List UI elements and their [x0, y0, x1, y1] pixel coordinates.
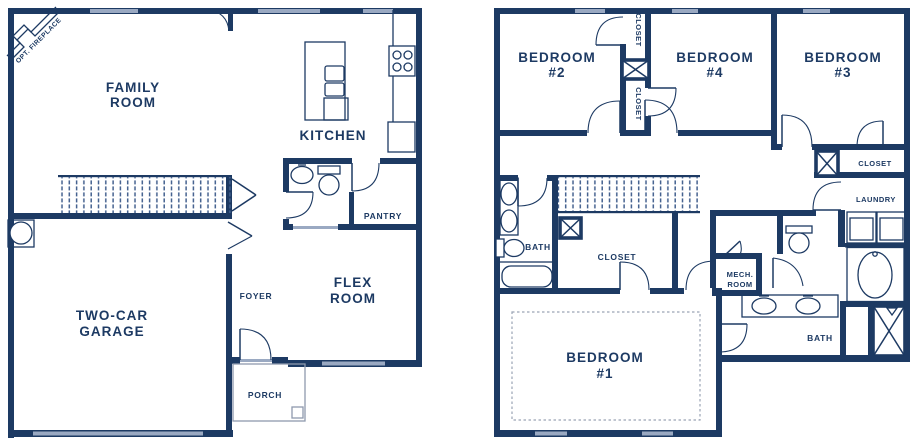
- room-label-kitchen: KITCHEN: [300, 128, 367, 143]
- exterior-walls-first-floor: [8, 8, 422, 438]
- room-label-bath: BATH: [807, 333, 833, 343]
- sink: [501, 210, 517, 232]
- toilet: [786, 226, 812, 253]
- door-laundry: [813, 182, 841, 210]
- floor-plan-canvas: OPT. FIREPLACE FAMILY ROOM KITCHEN PANTR…: [0, 0, 911, 444]
- room-label-bedroom-1: #1: [596, 366, 613, 381]
- door-front-entry: [240, 329, 271, 360]
- room-label-flex-room: ROOM: [330, 291, 376, 306]
- window: [363, 9, 393, 13]
- window: [535, 432, 567, 436]
- window: [258, 9, 320, 13]
- door-bedroom-3: [782, 115, 812, 147]
- room-label-mech-room: MECH.: [727, 270, 754, 279]
- window: [672, 9, 698, 13]
- window: [575, 9, 605, 13]
- window: [90, 9, 138, 13]
- room-label-mech-room: ROOM: [727, 280, 752, 289]
- door-closet-bedroom2: [596, 17, 623, 45]
- room-label-bedroom-3: #3: [834, 65, 851, 80]
- shower: [874, 307, 904, 355]
- door-closet-bedroom3: [857, 121, 883, 147]
- door-water-closet: [773, 258, 803, 288]
- door-garage-entry: [228, 222, 252, 249]
- room-label-garage: TWO-CAR: [76, 308, 148, 323]
- garden-tub: [847, 248, 904, 302]
- island-sink: [325, 83, 344, 96]
- room-label-bedroom-1: BEDROOM: [566, 350, 644, 365]
- kitchen-counter: [388, 10, 415, 152]
- room-label-foyer: FOYER: [240, 291, 273, 301]
- chase-xbox: [560, 218, 581, 238]
- sink: [291, 165, 313, 184]
- room-label-family-room: FAMILY: [106, 80, 160, 95]
- refrigerator: [388, 122, 415, 152]
- door-owner-closet: [620, 262, 649, 290]
- room-label-bedroom-4: #4: [706, 65, 723, 80]
- porch-column: [292, 407, 303, 418]
- room-label-bedroom-3: BEDROOM: [804, 50, 882, 65]
- staircase: [58, 177, 232, 213]
- island-sink: [325, 66, 344, 81]
- garage-door: [33, 432, 203, 436]
- washer: [847, 212, 876, 243]
- fireplace: [7, 7, 60, 60]
- door-hall-bath: [518, 178, 547, 206]
- toilet: [496, 239, 524, 257]
- room-label-laundry: LAUNDRY: [856, 195, 896, 204]
- sink: [796, 298, 820, 314]
- window: [322, 362, 385, 366]
- room-label-closet: CLOSET: [634, 87, 643, 120]
- hall-bath-fixtures: [496, 178, 557, 291]
- dryer: [877, 212, 906, 243]
- second-floor-plan: BEDROOM #2 BEDROOM #4 BEDROOM #3 CLOSET …: [494, 8, 910, 437]
- stove: [389, 46, 415, 76]
- doors-first-floor: [208, 10, 379, 360]
- room-label-family-room: ROOM: [110, 95, 156, 110]
- door-powder-room: [286, 192, 313, 218]
- floor-plan-drawing: OPT. FIREPLACE FAMILY ROOM KITCHEN PANTR…: [0, 0, 911, 444]
- room-label-porch: PORCH: [248, 390, 282, 400]
- room-label-garage: GARAGE: [79, 324, 144, 339]
- window: [803, 9, 830, 13]
- window: [642, 432, 673, 436]
- chase-xbox: [816, 151, 838, 176]
- room-label-flex-room: FLEX: [334, 275, 373, 290]
- powder-room-fixtures: [291, 165, 340, 195]
- door-owner-bath: [719, 324, 747, 352]
- chase-xbox: [622, 60, 649, 79]
- laundry-appliances: [847, 212, 906, 243]
- sink: [501, 183, 517, 205]
- bathtub: [497, 262, 557, 291]
- door-bedroom-2: [588, 101, 620, 133]
- room-label-bath: BATH: [525, 242, 551, 252]
- room-label-pantry: PANTRY: [364, 211, 402, 221]
- door-stair-closet: [232, 179, 256, 211]
- room-label-closet: CLOSET: [634, 13, 643, 46]
- toilet: [318, 166, 340, 195]
- room-label-bedroom-2: #2: [548, 65, 565, 80]
- sink: [752, 298, 776, 314]
- room-label-closet: CLOSET: [598, 252, 637, 262]
- kitchen-island: [305, 42, 348, 120]
- first-floor-plan: OPT. FIREPLACE FAMILY ROOM KITCHEN PANTR…: [7, 7, 422, 438]
- door-pantry: [352, 163, 379, 191]
- staircase: [558, 175, 700, 213]
- room-label-closet: CLOSET: [858, 159, 891, 168]
- room-label-bedroom-2: BEDROOM: [518, 50, 596, 65]
- room-label-bedroom-4: BEDROOM: [676, 50, 754, 65]
